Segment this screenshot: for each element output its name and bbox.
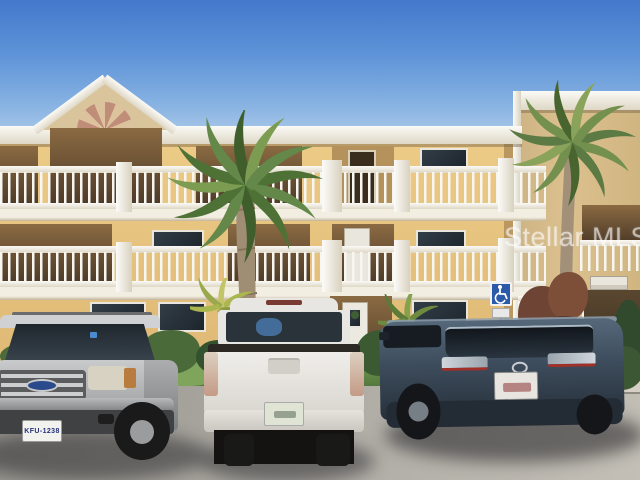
wheel xyxy=(114,402,170,460)
tail-light xyxy=(548,352,596,367)
listing-photo: KFU-1238 xyxy=(0,0,640,480)
plate-smudge xyxy=(274,411,296,418)
handicap-sign-panel xyxy=(490,282,512,306)
license-plate xyxy=(494,371,538,400)
window-object xyxy=(256,318,282,336)
grille xyxy=(0,370,86,400)
railing-pillar xyxy=(116,162,132,212)
wheelchair-icon xyxy=(492,284,510,304)
ford-oval-badge xyxy=(26,379,58,392)
headlight xyxy=(88,366,128,390)
plate-smudge xyxy=(503,383,531,392)
silver-suv: KFU-1238 xyxy=(0,306,178,462)
windshield-sticker xyxy=(90,332,97,338)
side-mirror xyxy=(379,332,389,340)
mls-watermark: Stellar MLS xyxy=(504,222,640,253)
tail-light xyxy=(442,356,488,371)
wheel xyxy=(396,383,441,440)
tailgate-handle xyxy=(268,358,300,374)
railing-pillar xyxy=(116,242,132,292)
rear-window xyxy=(226,312,342,342)
fog-light xyxy=(98,414,114,424)
wheel xyxy=(224,434,254,466)
blue-gray-suv xyxy=(379,310,631,454)
license-plate xyxy=(264,402,304,426)
grille-bar xyxy=(1,392,83,396)
white-pickup xyxy=(204,298,364,468)
alloy-wheel xyxy=(130,420,154,444)
turn-signal xyxy=(124,368,136,388)
wheel xyxy=(576,394,613,435)
railing-pillar xyxy=(394,240,410,292)
side-window xyxy=(383,325,441,348)
brake-light xyxy=(266,300,302,305)
wheel xyxy=(316,434,350,466)
alloy-wheel xyxy=(408,401,428,421)
grille-bar xyxy=(1,374,83,378)
tail-light xyxy=(204,352,218,396)
tail-light xyxy=(350,352,364,396)
railing-pillar xyxy=(394,160,410,212)
license-plate: KFU-1238 xyxy=(22,420,62,442)
windshield xyxy=(4,324,156,364)
